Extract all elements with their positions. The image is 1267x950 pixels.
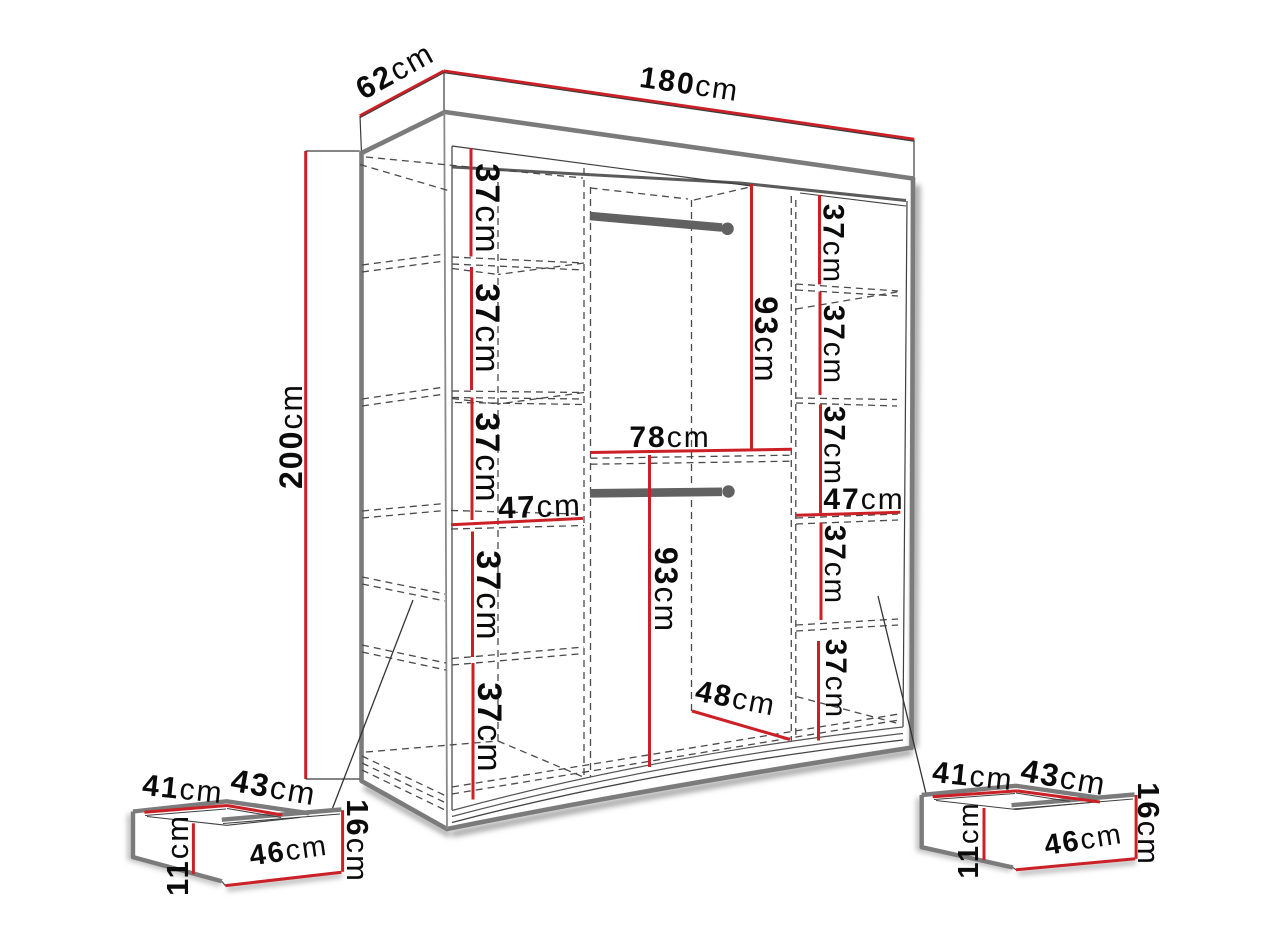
svg-text:37cm: 37cm	[470, 682, 508, 773]
svg-text:93cm: 93cm	[648, 547, 684, 633]
svg-text:93cm: 93cm	[748, 296, 784, 383]
svg-text:78cm: 78cm	[629, 421, 710, 454]
svg-text:11cm: 11cm	[160, 814, 195, 896]
svg-text:37cm: 37cm	[468, 283, 506, 374]
svg-text:47cm: 47cm	[497, 488, 582, 526]
svg-text:37cm: 37cm	[817, 204, 850, 284]
svg-text:200cm: 200cm	[273, 383, 309, 489]
svg-text:37cm: 37cm	[468, 163, 506, 254]
svg-text:37cm: 37cm	[469, 550, 507, 641]
svg-text:37cm: 37cm	[818, 525, 851, 605]
svg-text:37cm: 37cm	[819, 639, 852, 719]
svg-text:11cm: 11cm	[953, 801, 985, 878]
svg-text:41cm: 41cm	[141, 769, 225, 810]
svg-text:37cm: 37cm	[817, 305, 850, 385]
svg-text:37cm: 37cm	[818, 406, 851, 486]
svg-text:16cm: 16cm	[340, 799, 375, 883]
svg-text:16cm: 16cm	[1131, 782, 1166, 866]
svg-text:47cm: 47cm	[823, 483, 904, 516]
